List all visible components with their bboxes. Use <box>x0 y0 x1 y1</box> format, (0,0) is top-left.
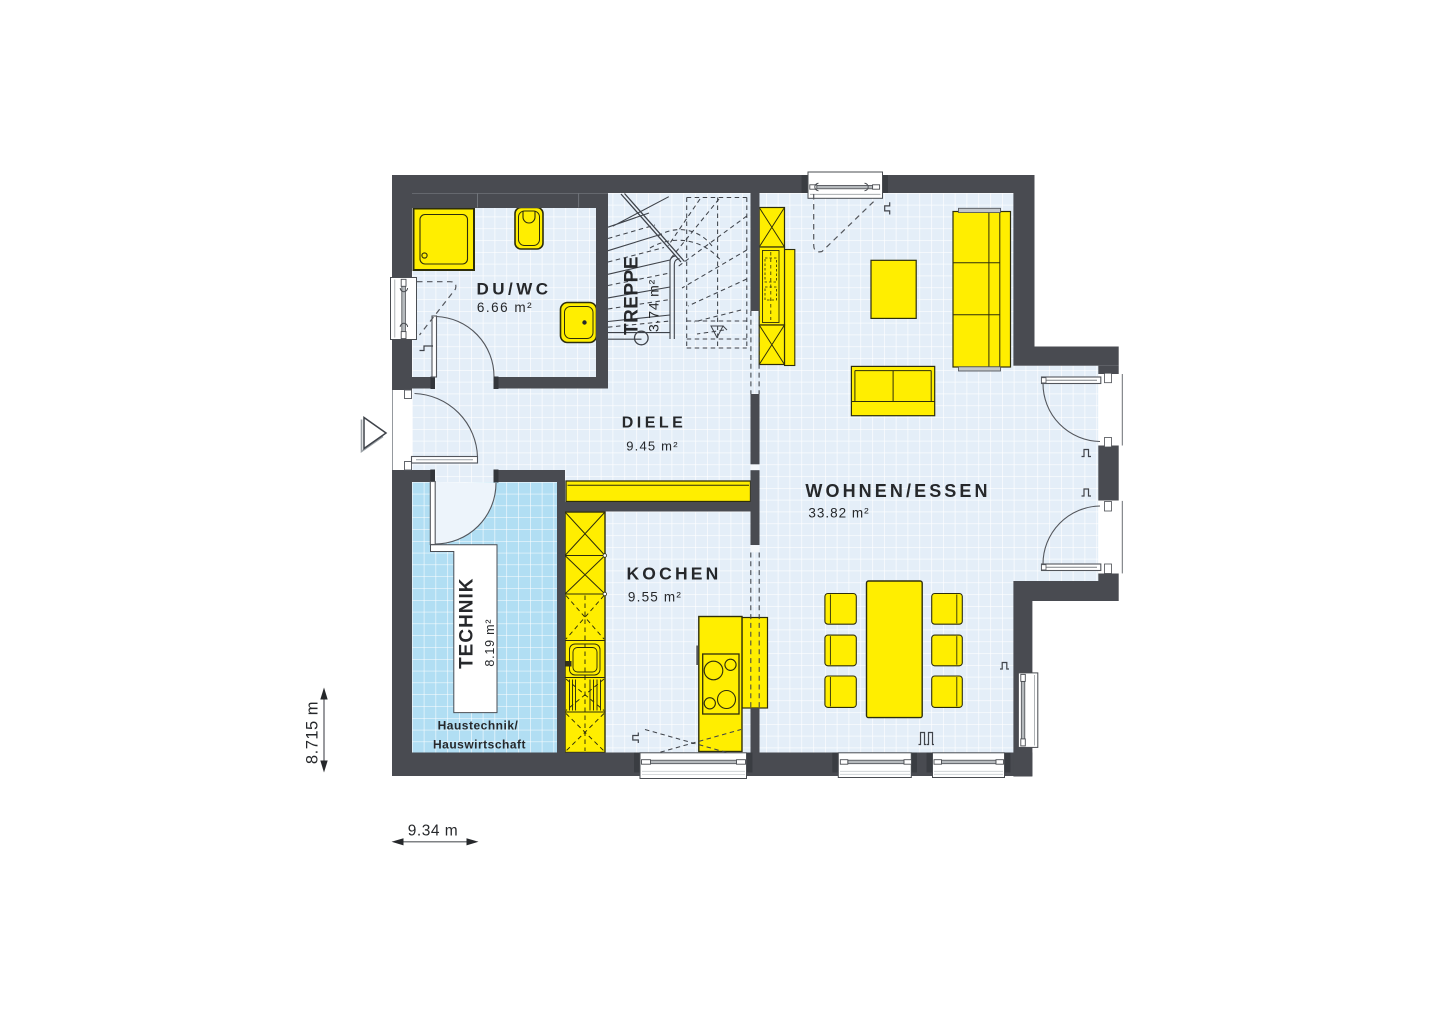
svg-text:33.82 m²: 33.82 m² <box>808 506 869 521</box>
svg-text:DU/WC: DU/WC <box>476 280 551 299</box>
svg-text:Haustechnik/: Haustechnik/ <box>438 719 519 733</box>
svg-text:WOHNEN/ESSEN: WOHNEN/ESSEN <box>805 481 990 501</box>
svg-text:6.66 m²: 6.66 m² <box>477 300 533 315</box>
svg-text:8.715 m: 8.715 m <box>304 701 322 764</box>
svg-text:8.19 m²: 8.19 m² <box>483 619 497 667</box>
svg-text:KOCHEN: KOCHEN <box>626 564 721 584</box>
svg-text:3.74 m²: 3.74 m² <box>646 279 662 332</box>
svg-text:TECHNIK: TECHNIK <box>457 577 478 668</box>
svg-text:TREPPE: TREPPE <box>622 256 643 335</box>
svg-text:Hauswirtschaft: Hauswirtschaft <box>433 738 526 752</box>
svg-text:DIELE: DIELE <box>622 415 687 432</box>
svg-text:9.55 m²: 9.55 m² <box>628 590 682 605</box>
svg-text:9.34 m: 9.34 m <box>408 823 458 840</box>
svg-text:9.45 m²: 9.45 m² <box>626 439 678 454</box>
